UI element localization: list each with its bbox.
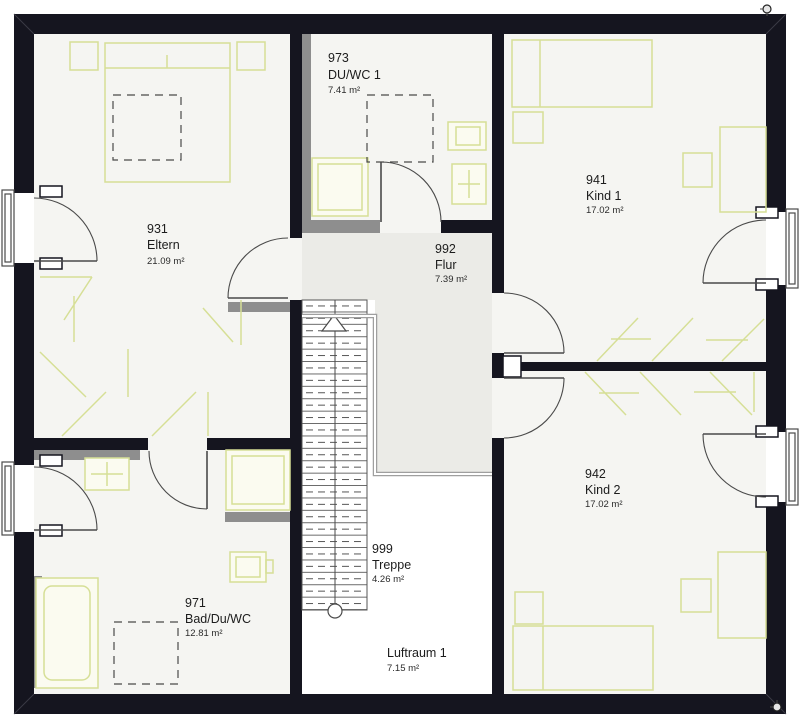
wall-stair-west <box>290 300 302 694</box>
shower <box>226 450 290 510</box>
knee-eltern-door <box>228 302 290 312</box>
room-name: Kind 1 <box>586 189 621 203</box>
room-name: DU/WC 1 <box>328 68 381 82</box>
floor-plan-page: 931 Eltern 21.09 m² 973 DU/WC 1 7.41 m² … <box>0 0 800 728</box>
room-area: 4.26 m² <box>372 574 404 585</box>
window-frame-inner <box>789 433 795 501</box>
window-frame-inner <box>5 466 11 531</box>
room-name: Bad/Du/WC <box>185 612 251 626</box>
wall-eltern-bad-b <box>207 438 302 450</box>
floor-plan: 931 Eltern 21.09 m² 973 DU/WC 1 7.41 m² … <box>0 0 800 728</box>
window-frame-inner <box>5 194 11 262</box>
room-number: 973 <box>328 51 349 65</box>
wall-duwc-south <box>441 220 492 233</box>
room-area: 12.81 m² <box>185 628 223 639</box>
bathtub <box>36 578 98 688</box>
duct-box <box>503 356 521 377</box>
window-jamb <box>40 455 62 466</box>
staircase <box>302 300 367 618</box>
window-jamb <box>756 279 778 290</box>
room-area: 7.41 m² <box>328 85 360 96</box>
window-gap-eltern <box>14 193 34 263</box>
wall-eltern-duwc <box>290 34 302 238</box>
room-area: 21.09 m² <box>147 256 185 267</box>
window-jamb <box>756 426 778 437</box>
room-name: Treppe <box>372 558 411 572</box>
room-number: 999 <box>372 542 393 556</box>
knee-bad-shower <box>225 512 290 522</box>
wall-stub-doors <box>492 353 504 378</box>
room-number: 931 <box>147 222 168 236</box>
shower <box>312 158 368 216</box>
room-area: 17.02 m² <box>586 205 624 216</box>
room-name: Eltern <box>147 238 180 252</box>
room-number: 941 <box>586 173 607 187</box>
room-name: Kind 2 <box>585 483 620 497</box>
knee-duwc-south <box>302 220 380 233</box>
wall-kind1-west <box>492 34 504 293</box>
vent-circle <box>763 5 771 13</box>
stair-post <box>328 604 342 618</box>
room-area: 7.39 m² <box>435 274 467 285</box>
wall-eltern-bad-a <box>34 438 148 450</box>
window-gap-kind1 <box>766 212 786 285</box>
window-jamb <box>40 258 62 269</box>
window-gap-bad <box>14 465 34 532</box>
room-number: 942 <box>585 467 606 481</box>
room-number: 971 <box>185 596 206 610</box>
window-jamb <box>40 186 62 197</box>
window-jamb <box>756 496 778 507</box>
vent-circle <box>773 703 781 711</box>
window-gap-kind2 <box>766 432 786 502</box>
knee-duwc-west <box>302 34 311 220</box>
room-number: 992 <box>435 242 456 256</box>
room-name: Luftraum 1 <box>387 646 447 660</box>
window-frame-inner <box>789 213 795 284</box>
room-area: 17.02 m² <box>585 499 623 510</box>
wall-kind1-kind2 <box>504 362 766 371</box>
room-area: 7.15 m² <box>387 663 419 674</box>
wall-kind2-west <box>492 438 504 694</box>
room-name: Flur <box>435 258 457 272</box>
